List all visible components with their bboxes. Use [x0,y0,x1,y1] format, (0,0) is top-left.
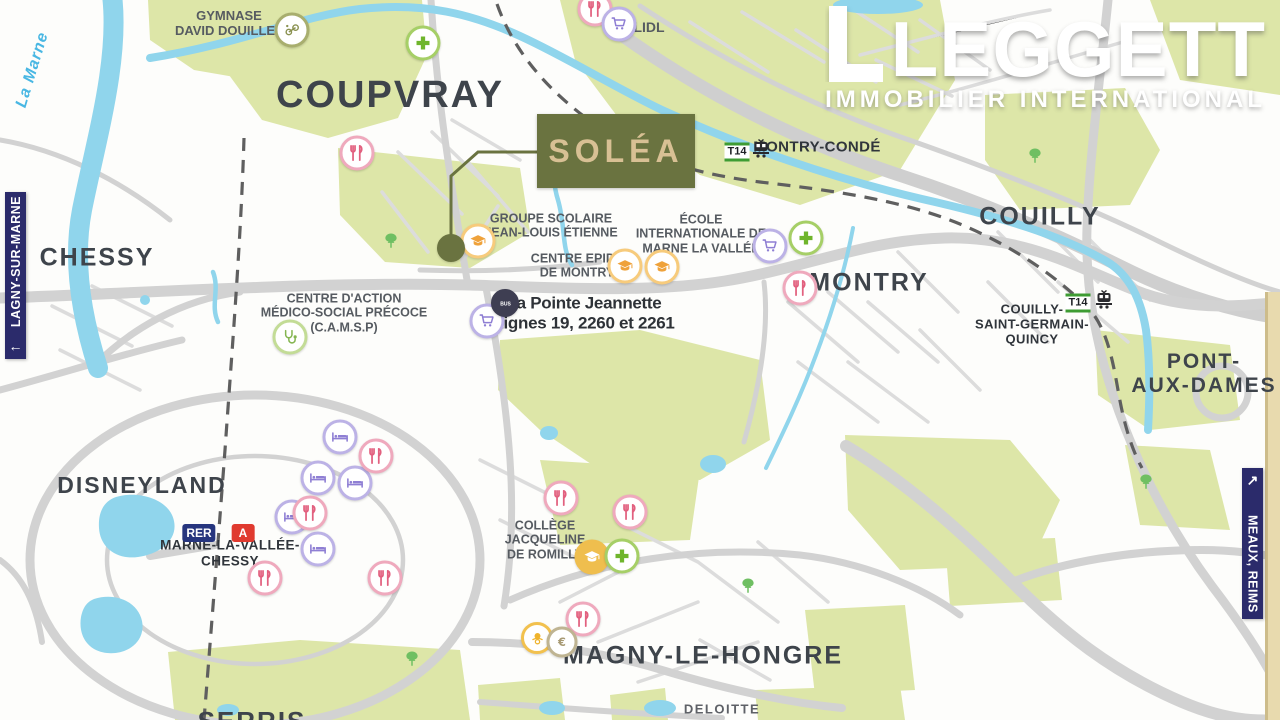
school-icon [608,249,643,284]
label-ecole-internationale: ÉCOLEINTERNATIONALE DEMARNE LA VALLÉE [636,212,766,255]
train-icon [749,137,773,166]
brand-name: LEGGETT [891,18,1266,82]
restaurant-icon [359,439,394,474]
restaurant-icon [293,496,328,531]
label-college-romilly: COLLÈGEJACQUELINEDE ROMILLY [505,518,586,561]
label-groupe-scolaire: GROUPE SCOLAIREJEAN-LOUIS ÉTIENNE [484,212,617,241]
bus-icon [491,289,519,317]
restaurant-icon [368,561,403,596]
tree-icon [734,572,762,600]
banner-lagny-sur-marne: LAGNY-SUR-MARNE ← [5,192,26,359]
label-pointe-jeannette: La Pointe JeannetteLignes 19, 2260 et 22… [493,293,674,332]
property-name: SOLÉA [548,133,683,170]
property-callout: SOLÉA [537,114,695,188]
tree-icon [398,645,426,673]
leggett-logo: LEGGETT IMMOBILIER INTERNATIONAL [825,6,1266,114]
sports-icon [275,13,310,48]
label-lidl: LIDL [633,19,664,35]
restaurant-icon [248,561,283,596]
label-pont-aux-dames: PONT-AUX-DAMES [1131,350,1276,398]
banner-meaux-reims: ↗ MEAUX, REIMS [1242,468,1263,619]
pharmacy-icon [406,26,441,61]
pharmacy-icon [605,539,640,574]
label-la-marne: La Marne [13,30,53,110]
medical-icon [273,320,308,355]
banner-right-label: MEAUX, REIMS [1246,515,1260,613]
label-marne-la-vallee-chessy: MARNE-LA-VALLÉE-CHESSY [160,537,300,568]
tree-icon [1132,468,1160,496]
label-montry: MONTRY [809,269,928,298]
t14-badge: T14 [1066,294,1091,313]
train-icon [1092,288,1116,317]
label-couilly: COUILLY [979,203,1100,232]
bed-icon [323,420,358,455]
label-coupvray: COUPVRAY [276,74,504,118]
school-icon [461,224,496,259]
cart-icon [602,7,637,42]
label-serris: SERRIS [198,707,307,720]
label-magny-le-hongre: MAGNY-LE-HONGRE [563,642,843,671]
leggett-logo-mark [825,6,883,82]
tree-icon [1021,142,1049,170]
map-canvas: € BUS [0,0,1280,720]
label-deloitte: DELOITTE [684,703,760,718]
rer-badge: RER [182,524,215,542]
arrow-left-icon: ← [9,339,23,353]
restaurant-icon [783,271,818,306]
banner-left-label: LAGNY-SUR-MARNE [9,196,23,327]
property-marker [437,234,465,262]
label-chessy: CHESSY [40,244,155,273]
label-disneyland: DISNEYLAND [57,472,227,498]
bank-icon [547,627,578,658]
t14-badge: T14 [725,143,750,162]
school-icon [645,250,680,285]
tree-icon [377,227,405,255]
label-conde-sainte-libiaire: CONDÉ-SAINTE-LIBIAIRE [994,0,1247,5]
restaurant-icon [340,136,375,171]
arrow-up-right-icon: ↗ [1247,473,1259,487]
pharmacy-icon [789,221,824,256]
bed-icon [301,532,336,567]
brand-tagline: IMMOBILIER INTERNATIONAL [825,86,1266,114]
label-gymnase-david-douillet: GYMNASEDAVID DOUILLET [175,9,283,39]
restaurant-icon [613,495,648,530]
line-a-badge: A [232,524,255,542]
cart-icon [753,229,788,264]
bed-icon [301,461,336,496]
restaurant-icon [544,481,579,516]
